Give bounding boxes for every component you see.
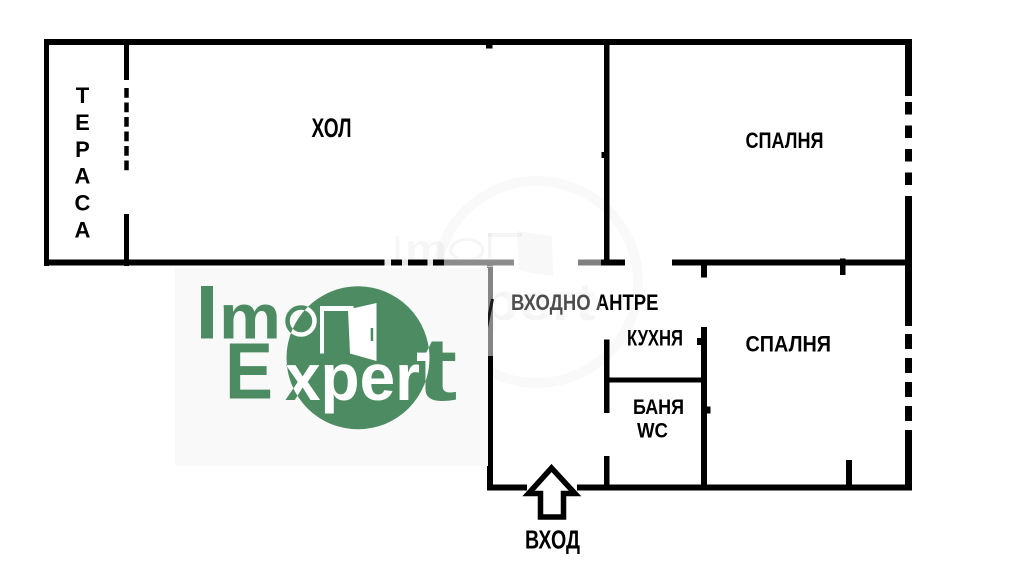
svg-text:БАНЯ: БАНЯ <box>633 396 684 419</box>
svg-text:КУХНЯ: КУХНЯ <box>627 326 683 351</box>
svg-text:Р: Р <box>75 137 90 162</box>
svg-text:ХОЛ: ХОЛ <box>312 113 352 143</box>
svg-text:А: А <box>75 164 91 189</box>
svg-text:ВХОД: ВХОД <box>525 525 580 555</box>
svg-text:А: А <box>75 218 91 243</box>
svg-text:СПАЛНЯ: СПАЛНЯ <box>746 128 824 153</box>
svg-text:E: E <box>225 327 273 416</box>
svg-text:СПАЛНЯ: СПАЛНЯ <box>746 332 832 357</box>
svg-text:WC: WC <box>637 420 668 443</box>
svg-text:Т: Т <box>76 83 90 108</box>
svg-text:Е: Е <box>75 110 90 135</box>
svg-text:С: С <box>75 191 91 216</box>
